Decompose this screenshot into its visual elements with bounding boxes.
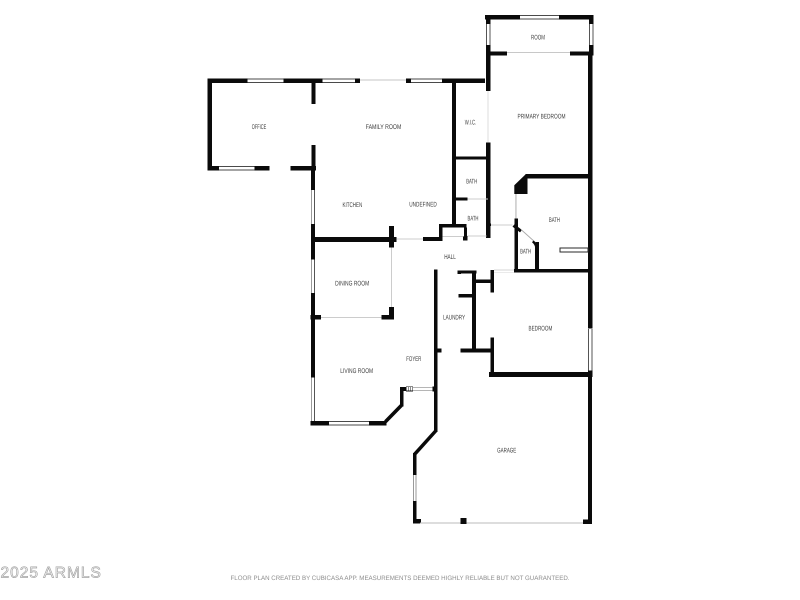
svg-text:HALL: HALL	[444, 254, 456, 261]
svg-text:OFFICE: OFFICE	[252, 124, 267, 131]
svg-text:BATH: BATH	[468, 216, 479, 223]
svg-text:2025 ARMLS: 2025 ARMLS	[1, 565, 102, 582]
svg-text:BEDROOM: BEDROOM	[529, 326, 553, 333]
svg-text:BATH: BATH	[549, 217, 560, 224]
svg-text:W.I.C.: W.I.C.	[465, 120, 477, 127]
svg-text:PRIMARY BEDROOM: PRIMARY BEDROOM	[518, 114, 566, 121]
svg-text:LAUNDRY: LAUNDRY	[443, 314, 465, 321]
svg-text:ROOM: ROOM	[531, 35, 545, 42]
svg-text:FAMILY ROOM: FAMILY ROOM	[366, 124, 402, 131]
svg-text:FOYER: FOYER	[406, 356, 421, 363]
svg-text:FLOOR PLAN CREATED BY CUBICASA: FLOOR PLAN CREATED BY CUBICASA APP. MEAS…	[231, 575, 570, 582]
svg-text:UNDEFINED: UNDEFINED	[409, 202, 437, 209]
svg-text:BATH: BATH	[520, 249, 531, 256]
svg-text:GARAGE: GARAGE	[497, 447, 517, 454]
svg-text:KITCHEN: KITCHEN	[343, 202, 363, 209]
svg-text:DINING ROOM: DINING ROOM	[335, 280, 369, 287]
svg-text:BATH: BATH	[466, 179, 477, 186]
svg-text:LIVING ROOM: LIVING ROOM	[340, 368, 373, 375]
